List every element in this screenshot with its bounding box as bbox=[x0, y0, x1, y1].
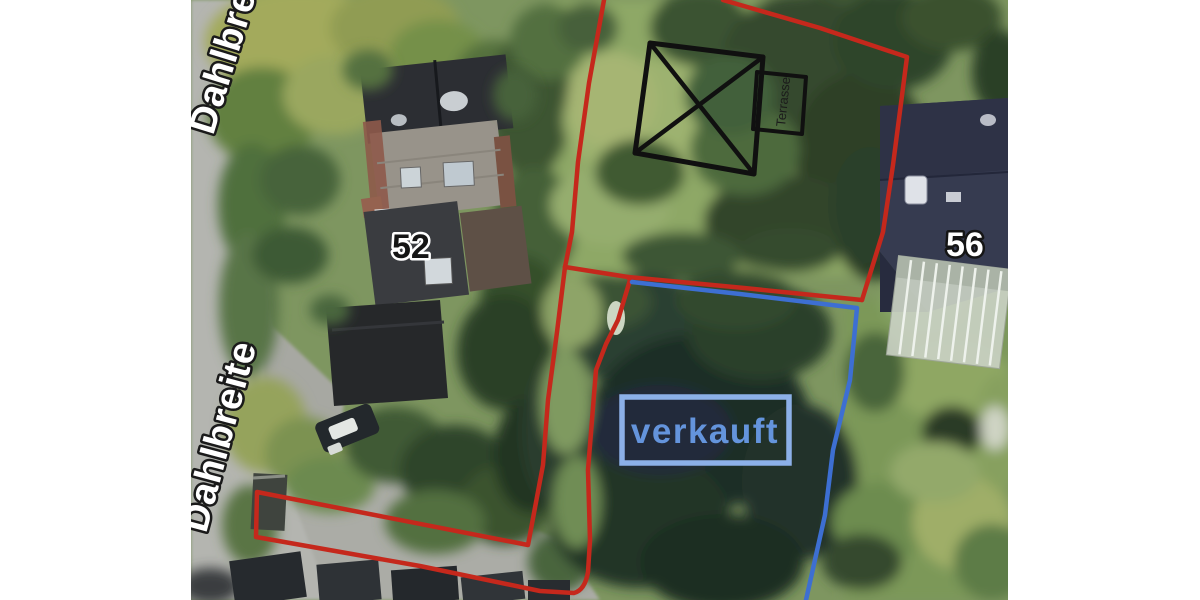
aerial-map-canvas: Terrasse verkauft Dahlbreite Dahlbreite … bbox=[0, 0, 1200, 600]
house-number-56: 56 bbox=[946, 226, 984, 264]
greenhouse bbox=[886, 256, 1011, 369]
house-number-52: 52 bbox=[392, 228, 430, 266]
aerial-photo: Terrasse verkauft Dahlbreite Dahlbreite … bbox=[0, 0, 1200, 600]
sold-label: verkauft bbox=[631, 412, 779, 451]
